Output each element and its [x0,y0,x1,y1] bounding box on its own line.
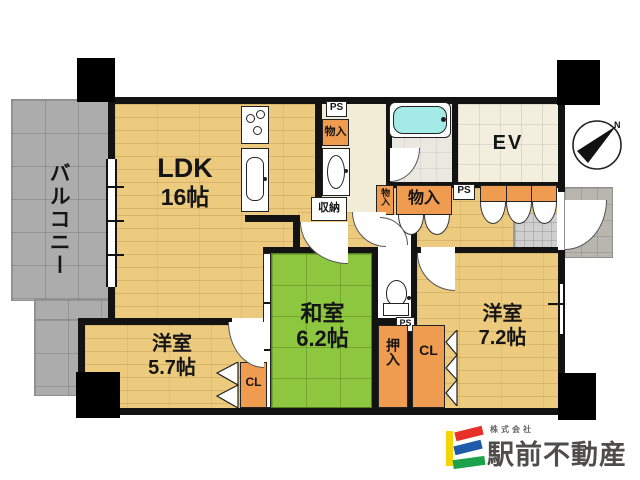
vanity-unit [322,148,350,196]
floorplan-canvas: PS 物入 収納 物入 物入 PS PS 押入 [0,0,640,480]
wall-bedroom57-top [78,318,232,325]
balcony-area-step [35,300,110,320]
wall-kitchen-south [245,215,300,222]
logo-bar-green [453,456,486,469]
cabinet-divider [531,186,532,201]
compass-north-label: N [614,120,621,130]
compass-icon: N [571,118,625,172]
wall-bedroom72-north [455,247,558,253]
pillar-top-left [77,58,115,102]
sink-basin [246,157,264,201]
toilet-tank [383,303,409,316]
closet-hall-small-label: 物入 [380,188,390,206]
logo-bar-blue [453,440,482,456]
burner-icon [253,126,262,135]
flush-handle-icon [407,296,411,300]
closet-hall-large-label: 物入 [397,190,451,208]
company-name-text: 駅前不動産 [487,433,627,472]
bathtub-water [393,106,447,134]
burner-icon [256,110,265,119]
closet-kitchen-label: 物入 [323,126,348,139]
pillar-top-right [557,60,600,105]
washitsu-size-label: 6.2帖 [275,326,370,351]
company-logo: 株式会社 駅前不動産 [440,420,640,478]
cabinet-divider [506,186,507,201]
washitsu-label: 和室 [275,301,370,326]
oshiire-label: 押入 [385,338,401,366]
bedroom57-label: 洋室 [112,333,232,356]
toilet-fixture [383,280,411,318]
balcony-label: バルコニー [46,162,70,277]
cl-72-label: CL [413,342,444,358]
wall-bottom [78,408,565,415]
ldk-size-label: 16帖 [125,184,245,210]
window-tick [108,186,124,188]
vanity-basin [327,155,345,189]
kitchen-counter-sink [241,148,269,212]
faucet-icon [441,117,446,122]
bedroom57-size-label: 5.7帖 [112,357,232,380]
wall-washroom-west [315,104,322,200]
fusuma-tick [264,349,270,351]
closet-kitchen: 物入 [322,119,349,146]
fusuma-tick [264,302,270,304]
window-tick [108,220,124,222]
faucet-icon [344,169,348,173]
ldk-label: LDK [125,153,245,184]
ps-entry-label: PS [454,185,474,197]
balcony-area-lower [35,320,78,395]
pillar-bottom-right [558,373,596,420]
window-tick [108,254,124,256]
faucet-icon [263,177,267,181]
bathtub [389,102,451,138]
shuno-storage: 収納 [311,197,347,221]
bedroom72-size-label: 7.2帖 [445,327,560,350]
cl-57-label: CL [241,376,266,390]
bedroom72-label: 洋室 [445,303,560,326]
closet-hall-large: 物入 [396,185,452,215]
shuno-label: 収納 [312,202,346,215]
oshiire-closet: 押入 [378,325,408,408]
cl-closet-72: CL [412,325,445,408]
shoe-cabinet [480,185,557,202]
elevator-label: EV [458,132,558,155]
stove-unit [241,106,269,144]
closet-hall-small: 物入 [376,185,394,215]
ps-box-entry: PS [453,184,475,200]
wall-right-mid [558,250,565,284]
window-balcony [106,159,117,287]
ps-top-label: PS [327,102,346,114]
wall-right-upper [558,104,565,192]
wall-left-upper [108,104,115,159]
burner-icon [246,114,255,123]
ps-box-top: PS [326,101,347,117]
cl-closet-57: CL [240,362,267,408]
